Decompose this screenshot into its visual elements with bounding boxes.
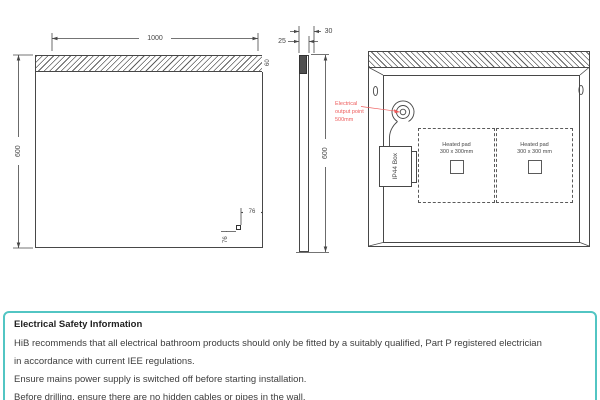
- electrical-output-note: Electrical output point 500mm: [335, 101, 364, 124]
- dim-height-label-front: 600: [12, 137, 25, 165]
- dim-depth-label: 25: [276, 37, 288, 46]
- heated-pad-right-title: Heated pad: [517, 142, 552, 149]
- electrical-output-note-line1: Electrical: [335, 101, 364, 109]
- side-view-profile: [299, 55, 309, 252]
- rear-top-band: [369, 52, 589, 68]
- electrical-output-note-line3: 500mm: [335, 117, 364, 125]
- electrical-safety-panel: Electrical Safety Information HiB recomm…: [3, 311, 597, 400]
- heated-pad-left-title: Heated pad: [440, 142, 473, 149]
- heated-pad-left-size: 300 x 300mm: [440, 149, 473, 156]
- safety-line-3: Ensure mains power supply is switched of…: [14, 371, 586, 389]
- dim-sensor-h-label: 76: [243, 208, 261, 216]
- safety-line-1: HiB recommends that all electrical bathr…: [14, 335, 586, 353]
- electrical-output-note-line2: output point: [335, 109, 364, 117]
- installation-drawing-page: 1000 600 60 76 76 25 30 600 IP44 Box Hea…: [0, 0, 600, 400]
- heated-pad-right-connector: [528, 160, 542, 174]
- ip44-box: IP44 Box: [379, 146, 412, 187]
- front-led-strip: [36, 56, 262, 72]
- dim-height-label-side: 600: [319, 139, 332, 167]
- heated-pad-right: Heated pad 300 x 300 mm: [496, 128, 573, 203]
- ip44-box-tab: [411, 151, 417, 183]
- safety-panel-title: Electrical Safety Information: [14, 319, 586, 330]
- dim-sensor-v-label: 76: [220, 232, 232, 247]
- heated-pad-left: Heated pad 300 x 300mm: [418, 128, 495, 203]
- safety-line-2: in accordance with current IEE regulatio…: [14, 353, 586, 371]
- ip44-box-label: IP44 Box: [392, 153, 399, 179]
- side-view-led-cap: [299, 55, 307, 74]
- dim-total-depth-label: 30: [322, 27, 335, 36]
- dim-strip-label: 60: [262, 54, 274, 72]
- dim-width-label: 1000: [139, 34, 171, 43]
- heated-pad-right-size: 300 x 300 mm: [517, 149, 552, 156]
- heated-pad-left-connector: [450, 160, 464, 174]
- sensor-switch-square: [236, 225, 241, 230]
- front-view-mirror: [35, 55, 263, 248]
- safety-line-4: Before drilling, ensure there are no hid…: [14, 389, 586, 400]
